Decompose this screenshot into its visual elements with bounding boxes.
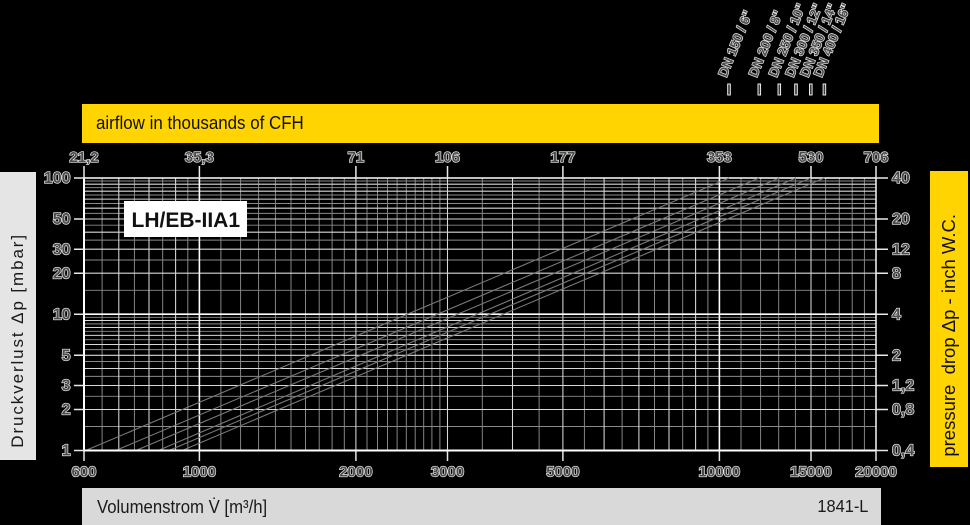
- svg-text:5000: 5000: [546, 464, 579, 481]
- svg-text:3000: 3000: [431, 464, 464, 481]
- svg-text:LH/EB-IIA1: LH/EB-IIA1: [132, 209, 241, 232]
- svg-text:12: 12: [892, 241, 910, 258]
- svg-text:20: 20: [53, 265, 71, 282]
- svg-text:50: 50: [53, 211, 71, 228]
- svg-text:530: 530: [798, 149, 823, 166]
- svg-text:0,8: 0,8: [892, 402, 914, 419]
- svg-text:600: 600: [71, 464, 96, 481]
- svg-text:40: 40: [892, 170, 910, 187]
- svg-text:0,4: 0,4: [892, 443, 914, 460]
- svg-text:2000: 2000: [339, 464, 372, 481]
- svg-text:30: 30: [53, 241, 71, 258]
- svg-text:4: 4: [892, 306, 901, 323]
- svg-text:1000: 1000: [183, 464, 216, 481]
- svg-text:100: 100: [44, 170, 71, 187]
- svg-text:706: 706: [863, 149, 888, 166]
- svg-text:20: 20: [892, 211, 910, 228]
- svg-text:177: 177: [550, 149, 575, 166]
- svg-text:20000: 20000: [855, 464, 897, 481]
- svg-text:353: 353: [707, 149, 732, 166]
- svg-text:1,2: 1,2: [892, 378, 914, 395]
- svg-text:3: 3: [62, 378, 71, 395]
- svg-text:35,3: 35,3: [185, 149, 214, 166]
- svg-text:10000: 10000: [699, 464, 741, 481]
- svg-text:2: 2: [892, 348, 901, 365]
- svg-text:2: 2: [62, 402, 71, 419]
- svg-text:71: 71: [348, 149, 365, 166]
- svg-text:8: 8: [892, 265, 901, 282]
- svg-text:21,2: 21,2: [69, 149, 98, 166]
- svg-text:5: 5: [62, 348, 71, 365]
- svg-text:15000: 15000: [790, 464, 832, 481]
- svg-text:10: 10: [53, 306, 71, 323]
- svg-text:1: 1: [62, 443, 71, 460]
- svg-text:106: 106: [435, 149, 460, 166]
